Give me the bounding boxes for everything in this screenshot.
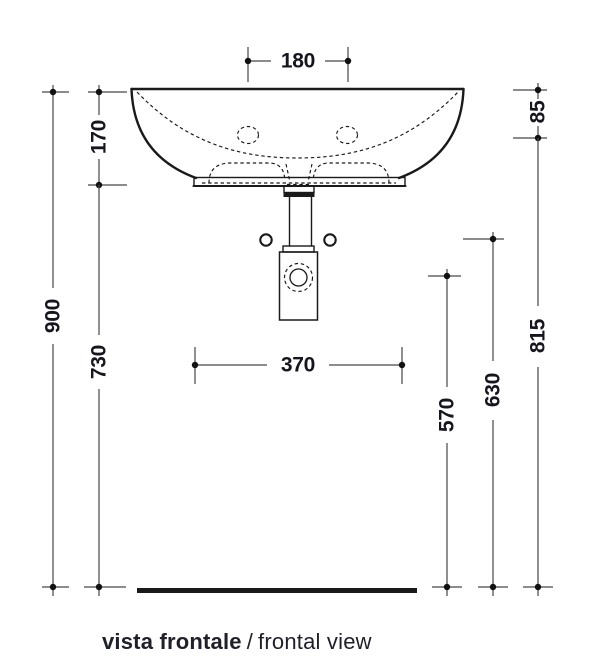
- dim-170-dot-top: [96, 89, 102, 95]
- basin-floor-right-contour-dashed: [314, 163, 390, 183]
- dim-85-dot-top: [535, 87, 541, 93]
- dim-630-dot-bottom: [490, 584, 496, 590]
- dim-570-label: 570: [436, 398, 459, 432]
- dim-730-label: 730: [88, 345, 111, 379]
- washbasin-technical-drawing: 180 170 900 730: [0, 0, 602, 668]
- caption: vista frontale/frontal view: [102, 629, 372, 655]
- drawing-page: 180 170 900 730: [0, 0, 602, 668]
- basin-inner-rim-dashed: [137, 92, 458, 158]
- dimension-left-under-basin: 730: [84, 185, 126, 596]
- dimension-right-mid: 630: [463, 232, 508, 596]
- trap-inlet-dashed-circle: [285, 264, 313, 292]
- dim-900-extension-ticks: [42, 92, 69, 587]
- dim-900-dot-top: [50, 89, 56, 95]
- trap-nut-collar: [283, 246, 314, 252]
- dimension-left-total-height: 900: [42, 85, 70, 596]
- drain-flange-gasket: [284, 193, 315, 198]
- dim-370-dot-right: [399, 362, 405, 368]
- caption-english: frontal view: [258, 629, 372, 654]
- mounting-hole-left: [260, 234, 271, 245]
- dim-180-dot-left: [245, 58, 251, 64]
- drain-funnel-dashed: [286, 164, 312, 185]
- drain-tailpipe: [290, 197, 312, 246]
- drain-assembly: [260, 186, 335, 320]
- faucet-hole-left-dashed: [238, 127, 259, 144]
- dim-570-dot-bottom: [444, 584, 450, 590]
- dim-370-label: 370: [281, 354, 315, 377]
- dim-630-label: 630: [482, 373, 505, 407]
- dimension-right-rim-offset: 85: [513, 83, 550, 141]
- dim-730-dot-bottom: [96, 584, 102, 590]
- dim-900-label: 900: [42, 299, 65, 333]
- dim-630-dot-top: [490, 236, 496, 242]
- dim-815-dot-bottom: [535, 584, 541, 590]
- trap-inlet-inner-circle: [290, 269, 307, 286]
- dimension-right-inner: 570: [428, 269, 462, 596]
- mounting-hole-right: [324, 234, 335, 245]
- dim-85-label: 85: [527, 100, 550, 123]
- basin-left-outline: [132, 89, 197, 178]
- dim-370-dot-left: [192, 362, 198, 368]
- dim-170-label: 170: [88, 120, 111, 154]
- basin-floor-left-contour-dashed: [209, 163, 285, 183]
- dimension-top-hole-spacing: 180: [245, 47, 351, 82]
- caption-italian: vista frontale: [102, 629, 242, 654]
- dim-815-label: 815: [527, 318, 550, 353]
- dimension-bottom-base-width: 370: [192, 347, 405, 384]
- caption-separator: /: [247, 629, 253, 654]
- dim-900-dot-bottom: [50, 584, 56, 590]
- dimension-left-basin-height: 170: [88, 85, 128, 188]
- basin-right-outline: [399, 89, 464, 178]
- dim-570-dot-top: [444, 273, 450, 279]
- dimension-right-total: 815: [523, 138, 553, 596]
- dim-180-dot-right: [345, 58, 351, 64]
- basin: [132, 89, 464, 186]
- floor-line: [137, 588, 417, 593]
- faucet-hole-right-dashed: [337, 127, 358, 144]
- dim-180-label: 180: [281, 50, 315, 73]
